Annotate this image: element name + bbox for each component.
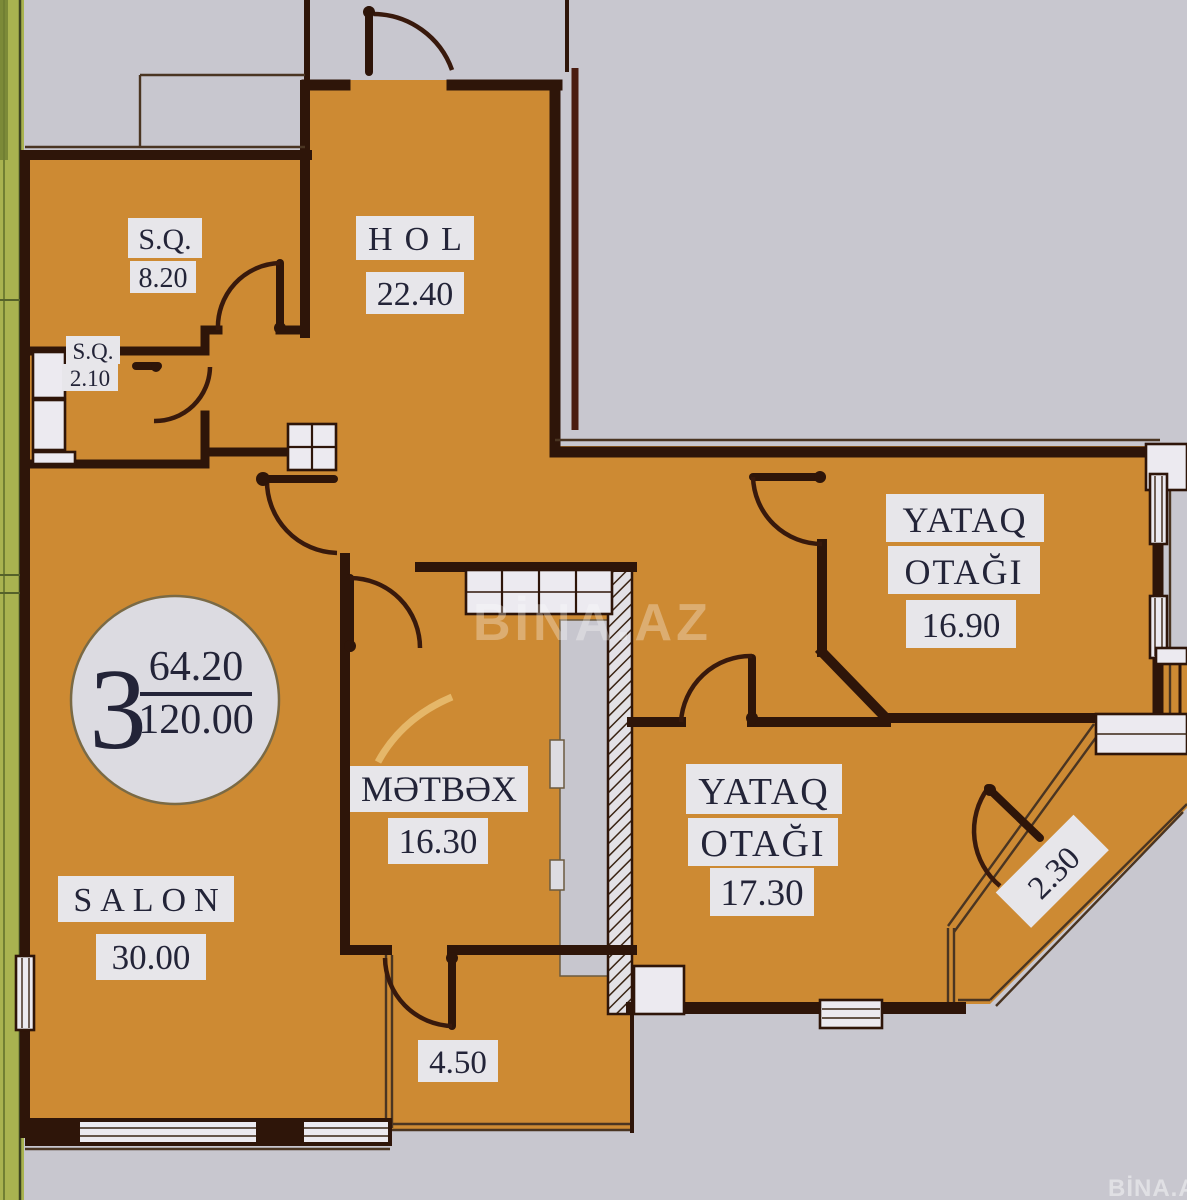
salon-name: SALON bbox=[73, 882, 226, 919]
hol-name: HOL bbox=[368, 221, 474, 258]
salon-bottom-wall bbox=[25, 1118, 392, 1146]
bedroom1-name-1: YATAQ bbox=[902, 500, 1027, 540]
bedroom1-area: 16.90 bbox=[922, 606, 1001, 645]
salon-left-window bbox=[16, 956, 34, 1030]
label-balcony-bottom: 4.50 bbox=[418, 1040, 498, 1082]
bedroom1-window-upper bbox=[1150, 474, 1167, 544]
bedroom1-name-2: OTAĞI bbox=[904, 552, 1023, 592]
balcony-bottom-area: 4.50 bbox=[429, 1045, 487, 1081]
unit-badge: 3 64.20 120.00 bbox=[71, 596, 279, 804]
bedroom2-name-1: YATAQ bbox=[698, 771, 830, 813]
hol-area: 22.40 bbox=[377, 276, 454, 313]
bedroom2-bottom-window bbox=[820, 1000, 882, 1028]
bedroom2-area: 17.30 bbox=[720, 873, 803, 914]
label-sq1: S.Q. 8.20 bbox=[128, 218, 202, 294]
sq1-name: S.Q. bbox=[138, 223, 191, 256]
vestibule-glass-block bbox=[288, 424, 336, 470]
unit-area-living: 64.20 bbox=[149, 644, 244, 690]
bedroom2-name-2: OTAĞI bbox=[700, 823, 825, 865]
balcony-corner-pier bbox=[1096, 714, 1187, 754]
floor-plan-canvas: 3 64.20 120.00 S.Q. 8.20 HOL 22.40 S.Q. … bbox=[0, 0, 1187, 1200]
sq1-area: 8.20 bbox=[139, 263, 188, 294]
watermark-center: BİNA.AZ bbox=[473, 594, 712, 652]
floor-plan-page: 3 64.20 120.00 S.Q. 8.20 HOL 22.40 S.Q. … bbox=[0, 0, 1187, 1200]
kitchen-name: MƏTBƏX bbox=[361, 769, 517, 809]
watermark-corner: BİNA.AZ bbox=[1108, 1175, 1187, 1200]
unit-area-total: 120.00 bbox=[138, 697, 254, 743]
bedroom2-corner-pier bbox=[634, 966, 684, 1014]
sq2-name: S.Q. bbox=[73, 339, 114, 364]
label-sq2: S.Q. 2.10 bbox=[62, 336, 120, 391]
kitchen-area: 16.30 bbox=[399, 822, 478, 861]
sq2-area: 2.10 bbox=[70, 366, 110, 391]
salon-area: 30.00 bbox=[112, 938, 191, 977]
